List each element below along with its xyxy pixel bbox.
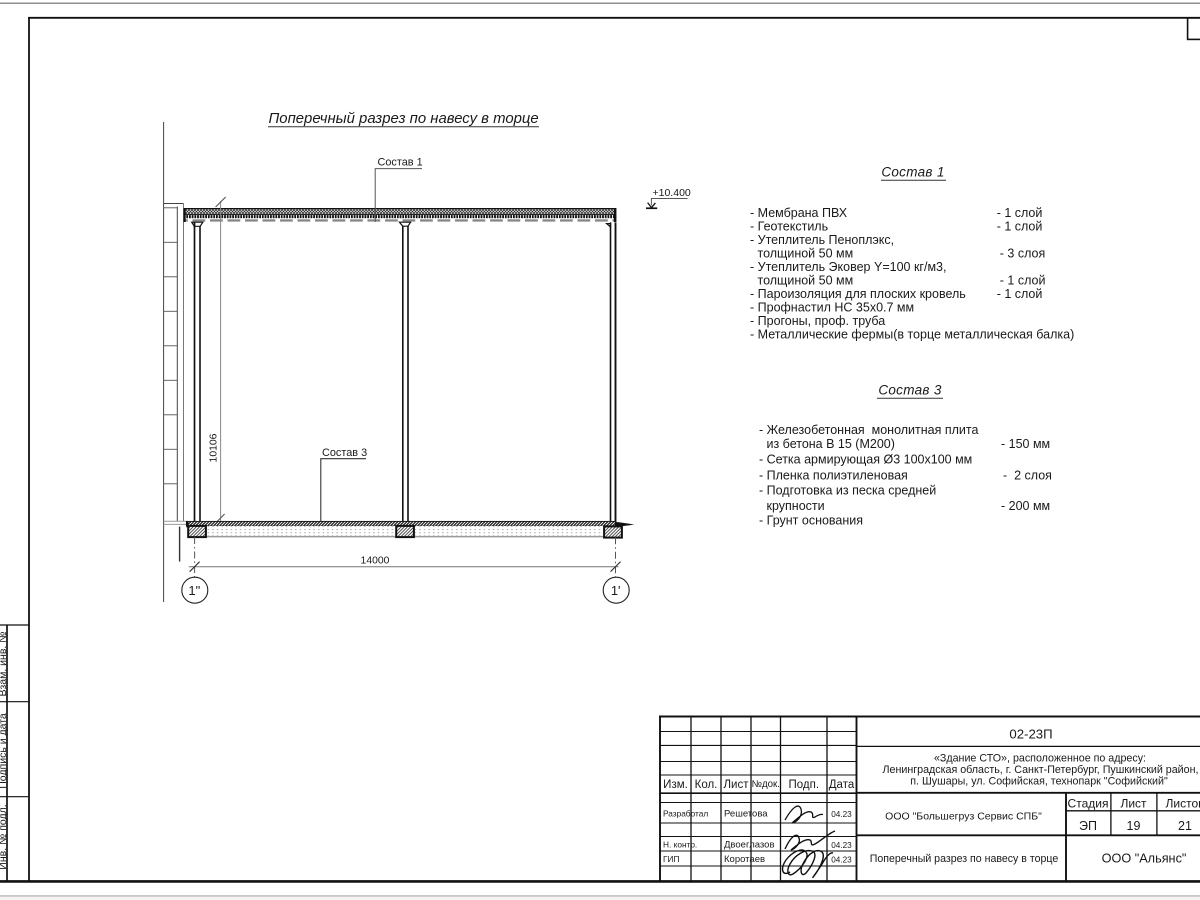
- svg-text:- 2 слоя: - 2 слоя: [1003, 469, 1052, 483]
- svg-text:Подп.: Подп.: [789, 779, 820, 791]
- svg-text:- Профнастил НС 35х0.7 мм: - Профнастил НС 35х0.7 мм: [750, 301, 914, 315]
- svg-text:- 3 слоя: - 3 слоя: [1000, 247, 1045, 261]
- svg-text:Поперечный разрез по навесу в: Поперечный разрез по навесу в торце: [870, 853, 1059, 865]
- svg-text:Лист: Лист: [1120, 797, 1147, 811]
- svg-text:- 1 слой: - 1 слой: [997, 206, 1043, 220]
- svg-text:толщиной 50 мм: толщиной 50 мм: [758, 274, 854, 288]
- svg-text:ЭП: ЭП: [1079, 819, 1097, 833]
- svg-text:Коротаев: Коротаев: [724, 854, 765, 865]
- svg-text:- 1 слой: - 1 слой: [997, 220, 1043, 234]
- svg-text:Состав 1: Состав 1: [378, 157, 423, 169]
- svg-text:п. Шушары, ул. Софийская, техн: п. Шушары, ул. Софийская, технопарк "Соф…: [910, 776, 1168, 788]
- svg-text:Инв. № подл.: Инв. № подл.: [0, 804, 9, 869]
- svg-text:Состав 1: Состав 1: [881, 165, 944, 180]
- svg-text:Подпись и дата: Подпись и дата: [0, 713, 9, 789]
- svg-text:Кол.: Кол.: [695, 779, 718, 791]
- svg-text:крупности: крупности: [767, 499, 825, 513]
- svg-text:«Здание СТО», расположенное по: «Здание СТО», расположенное по адресу:: [934, 753, 1146, 765]
- svg-text:- Железобетонная монолитная п: - Железобетонная монолитная плита: [759, 423, 978, 437]
- svg-text:Взам. инв. №: Взам. инв. №: [0, 631, 9, 696]
- svg-text:- Металлические фермы(в торце: - Металлические фермы(в торце металличес…: [750, 328, 1074, 342]
- svg-text:Состав 3: Состав 3: [322, 447, 367, 459]
- svg-text:Двоеглазов: Двоеглазов: [724, 840, 775, 851]
- svg-text:- 1 слой: - 1 слой: [1000, 274, 1046, 288]
- svg-text:- Сетка армирующая Ø3 100х100: - Сетка армирующая Ø3 100х100 мм: [759, 453, 972, 467]
- svg-text:Ленинградская область, г. Санк: Ленинградская область, г. Санкт-Петербур…: [883, 764, 1199, 776]
- svg-text:19: 19: [1127, 819, 1141, 833]
- svg-text:04.23: 04.23: [831, 841, 852, 850]
- svg-text:- Подготовка из песка средней: - Подготовка из песка средней: [759, 484, 936, 498]
- svg-text:ООО "Альянс": ООО "Альянс": [1102, 852, 1187, 866]
- svg-text:Стадия: Стадия: [1068, 797, 1109, 811]
- svg-text:- Геотекстиль: - Геотекстиль: [750, 220, 828, 234]
- svg-text:14000: 14000: [361, 555, 390, 566]
- svg-text:10106: 10106: [209, 433, 220, 462]
- svg-text:- Утеплитель Пеноплэкс,: - Утеплитель Пеноплэкс,: [750, 233, 894, 247]
- svg-text:- 150 мм: - 150 мм: [1001, 437, 1050, 451]
- svg-text:04.23: 04.23: [831, 856, 852, 865]
- svg-text:+10.400: +10.400: [653, 187, 691, 199]
- svg-text:Лист: Лист: [724, 779, 750, 791]
- svg-text:- Пленка полиэтиленовая: - Пленка полиэтиленовая: [759, 469, 908, 483]
- svg-text:- Прогоны, проф. труба: - Прогоны, проф. труба: [750, 314, 885, 328]
- svg-text:из бетона В 15 (М200): из бетона В 15 (М200): [767, 437, 895, 451]
- svg-text:21: 21: [1178, 819, 1192, 833]
- svg-text:04.23: 04.23: [831, 810, 852, 819]
- svg-text:- Утеплитель Эковер Y=100 кг/м: - Утеплитель Эковер Y=100 кг/м3,: [750, 260, 946, 274]
- svg-text:Н. контр.: Н. контр.: [663, 840, 697, 850]
- svg-text:Дата: Дата: [829, 779, 855, 791]
- svg-text:1': 1': [611, 583, 621, 598]
- svg-text:- 200 мм: - 200 мм: [1001, 499, 1050, 513]
- svg-text:Листов: Листов: [1166, 797, 1200, 811]
- svg-text:02-23П: 02-23П: [1009, 727, 1052, 742]
- svg-text:Состав 3: Состав 3: [878, 383, 942, 398]
- svg-text:- Мембрана ПВХ: - Мембрана ПВХ: [750, 206, 848, 220]
- svg-text:ГИП: ГИП: [663, 854, 679, 864]
- svg-text:- Грунт основания: - Грунт основания: [759, 514, 863, 528]
- svg-text:толщиной 50 мм: толщиной 50 мм: [758, 247, 854, 261]
- svg-text:Разработал: Разработал: [663, 809, 708, 819]
- svg-text:№док.: №док.: [752, 779, 780, 790]
- svg-text:Изм.: Изм.: [663, 779, 688, 791]
- svg-text:- 1 слой: - 1 слой: [997, 287, 1043, 301]
- svg-text:ООО "Большегруз Сервис СПБ": ООО "Большегруз Сервис СПБ": [885, 811, 1042, 823]
- svg-text:Поперечный разрез по навесу в: Поперечный разрез по навесу в торце: [269, 111, 539, 127]
- svg-text:- Пароизоляция для плоских кро: - Пароизоляция для плоских кровель: [750, 287, 966, 301]
- svg-text:1": 1": [188, 583, 200, 598]
- svg-text:Решетова: Решетова: [724, 809, 768, 820]
